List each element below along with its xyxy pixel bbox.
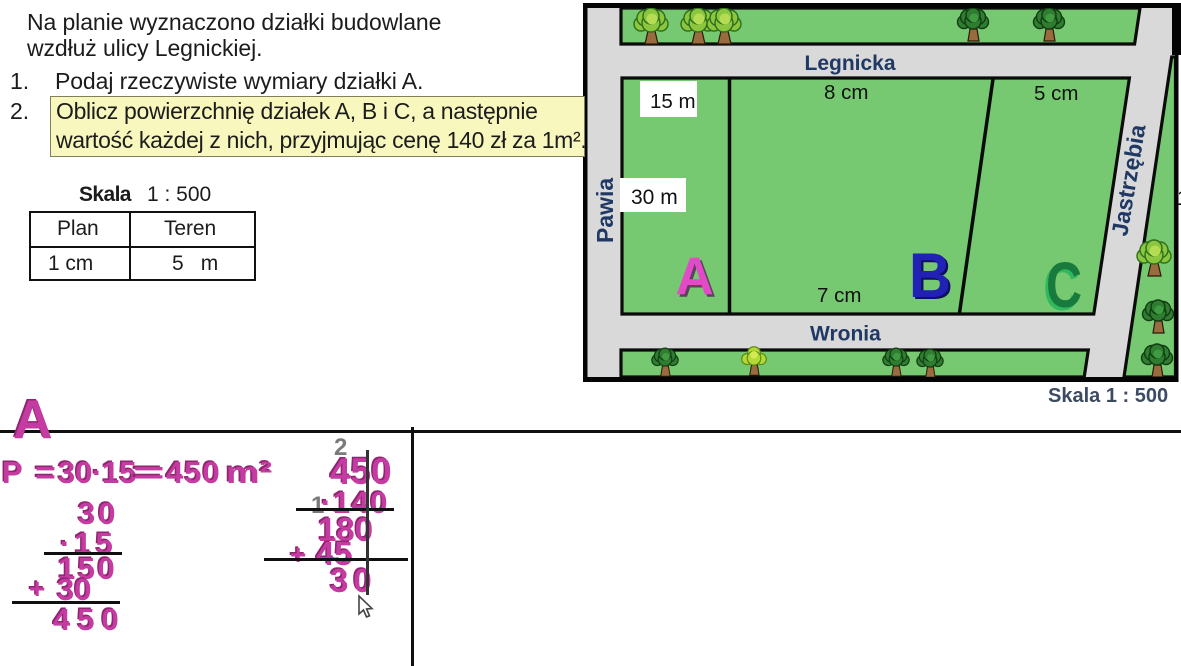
svg-text:1: 1: [1177, 187, 1181, 210]
svg-text:C: C: [1046, 250, 1082, 321]
svg-text:30 m: 30 m: [631, 186, 678, 209]
svg-text:Skala 1 : 500: Skala 1 : 500: [1048, 385, 1168, 407]
svg-text:15 m: 15 m: [650, 90, 696, 113]
svg-text:Wronia: Wronia: [810, 323, 881, 346]
svg-text:A: A: [676, 248, 714, 307]
svg-text:Pawia: Pawia: [592, 178, 618, 243]
svg-text:7 cm: 7 cm: [817, 284, 861, 307]
svg-text:B: B: [909, 240, 951, 311]
svg-text:8 cm: 8 cm: [824, 81, 868, 104]
svg-text:5 cm: 5 cm: [1034, 82, 1078, 105]
svg-text:Legnicka: Legnicka: [805, 52, 896, 75]
